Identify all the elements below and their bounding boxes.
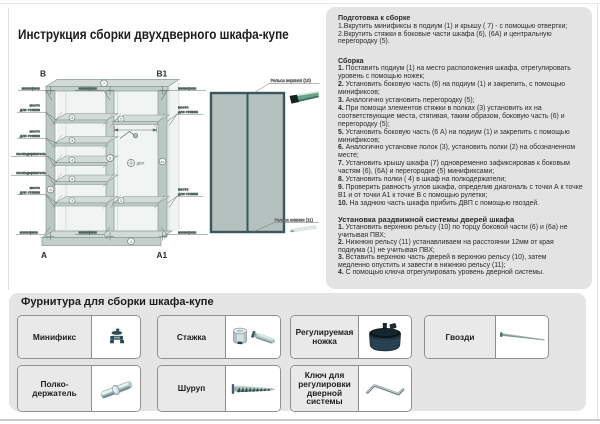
svg-text:4: 4 bbox=[71, 159, 73, 163]
svg-text:B: B bbox=[40, 69, 46, 79]
svg-text:Рельса нижняя (11): Рельса нижняя (11) bbox=[275, 218, 314, 223]
svg-text:для стяжки: для стяжки bbox=[20, 134, 40, 138]
svg-text:минификс: минификс bbox=[22, 86, 40, 90]
svg-text:1: 1 bbox=[130, 240, 132, 244]
svg-text:место: место bbox=[29, 186, 40, 190]
svg-text:место: место bbox=[178, 188, 189, 192]
svg-text:6: 6 bbox=[49, 188, 51, 192]
svg-text:полкодержатель: полкодержатель bbox=[16, 152, 47, 156]
svg-text:3: 3 bbox=[71, 199, 73, 203]
svg-text:3: 3 bbox=[71, 139, 73, 143]
svg-text:4: 4 bbox=[71, 178, 73, 182]
svg-text:минификс: минификс bbox=[178, 231, 196, 235]
svg-text:для стяжки: для стяжки bbox=[178, 110, 198, 114]
svg-text:минификс: минификс bbox=[79, 231, 97, 235]
svg-text:2: 2 bbox=[120, 118, 122, 122]
svg-text:A: A bbox=[41, 250, 47, 260]
svg-text:ДВП: ДВП bbox=[137, 162, 145, 166]
svg-text:3: 3 bbox=[71, 116, 73, 120]
svg-text:7: 7 bbox=[103, 82, 105, 86]
svg-text:место: место bbox=[178, 106, 189, 110]
svg-text:место: место bbox=[29, 104, 40, 108]
svg-text:минификс: минификс bbox=[20, 231, 38, 235]
svg-text:для стяжки: для стяжки bbox=[178, 192, 198, 196]
svg-text:для стяжки: для стяжки bbox=[20, 108, 40, 112]
svg-text:минификс: минификс bbox=[79, 86, 97, 90]
svg-text:место: место bbox=[29, 130, 40, 134]
svg-text:B1: B1 bbox=[157, 69, 168, 79]
svg-text:минификс: минификс bbox=[178, 86, 196, 90]
svg-text:6А: 6А bbox=[161, 160, 165, 164]
svg-text:полкодержатель: полкодержатель bbox=[16, 171, 47, 175]
svg-text:5: 5 bbox=[109, 157, 111, 161]
svg-text:A1: A1 bbox=[157, 250, 168, 260]
svg-text:2: 2 bbox=[120, 199, 122, 203]
svg-text:Рельса верхняя (10): Рельса верхняя (10) bbox=[271, 78, 312, 83]
svg-text:для стяжки: для стяжки bbox=[20, 191, 40, 195]
